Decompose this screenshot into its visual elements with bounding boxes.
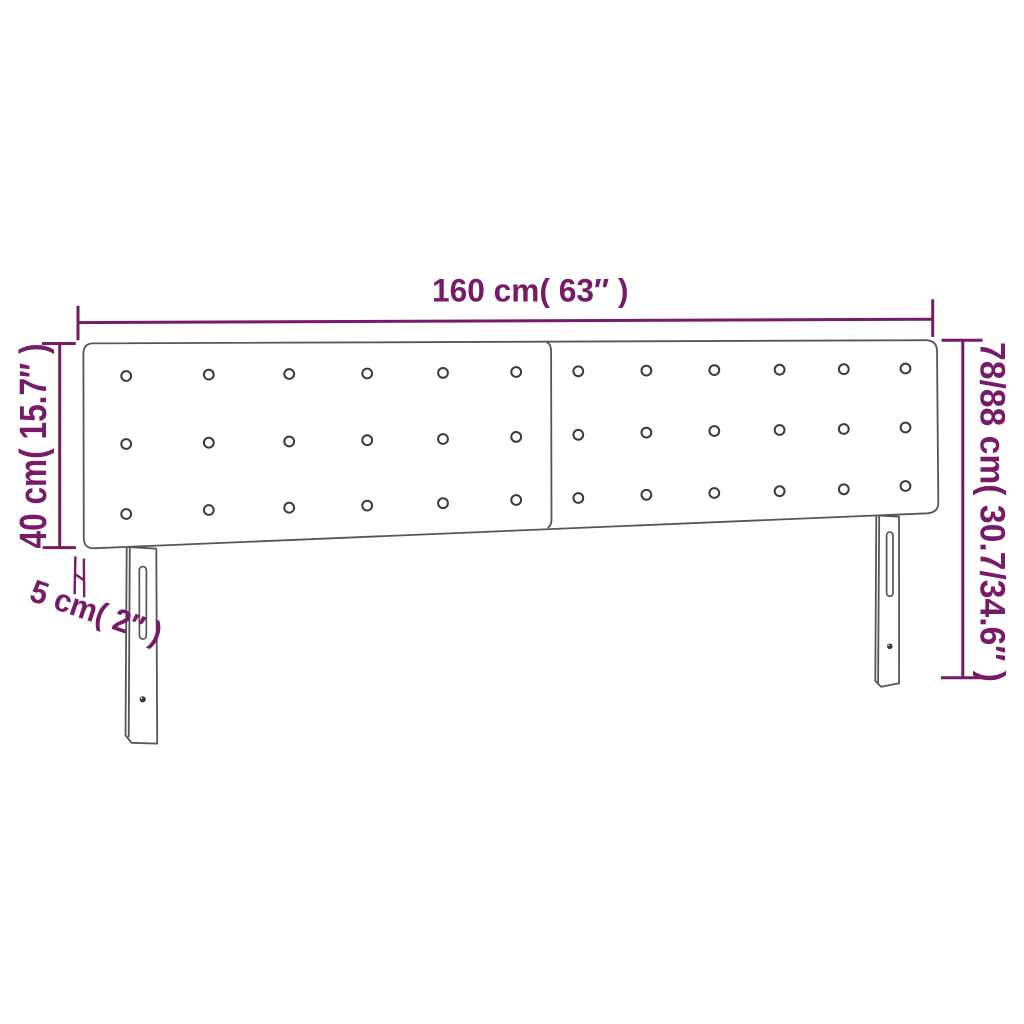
svg-text:160 cm( 63″ ): 160 cm( 63″ ) [432, 273, 629, 309]
svg-text:78/88 cm( 30.7/34.6″ ): 78/88 cm( 30.7/34.6″ ) [973, 342, 1012, 682]
svg-text:40 cm( 15.7″ ): 40 cm( 15.7″ ) [13, 344, 55, 549]
